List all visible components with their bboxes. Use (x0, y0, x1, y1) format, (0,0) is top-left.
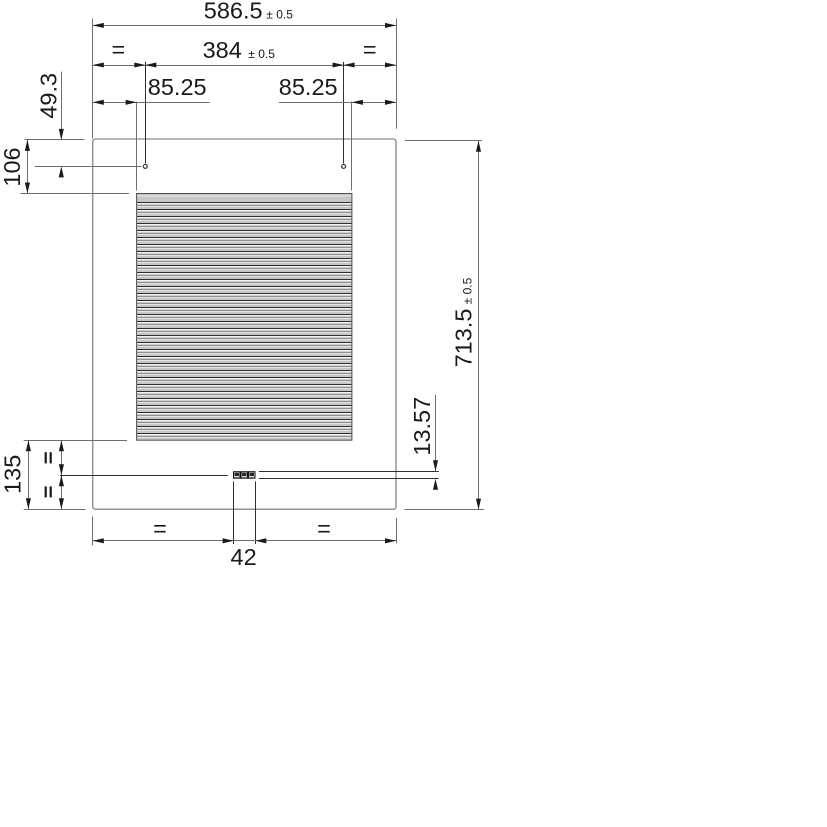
svg-text:586.5: 586.5 (204, 0, 263, 24)
svg-text:13.57: 13.57 (409, 397, 435, 456)
svg-text:± 0.5: ± 0.5 (266, 8, 293, 22)
svg-text:135: 135 (0, 455, 25, 494)
svg-text:85.25: 85.25 (279, 74, 338, 100)
svg-text:384: 384 (203, 37, 242, 63)
svg-text:49.3: 49.3 (35, 73, 61, 119)
svg-text:=: = (317, 516, 331, 542)
svg-text:106: 106 (0, 147, 25, 186)
svg-text:=: = (153, 516, 167, 542)
svg-text:85.25: 85.25 (148, 74, 207, 100)
svg-text:± 0.5: ± 0.5 (460, 277, 474, 304)
svg-text:=: = (112, 36, 126, 62)
svg-text:± 0.5: ± 0.5 (248, 47, 275, 61)
svg-text:713.5: 713.5 (450, 309, 476, 368)
svg-text:42: 42 (231, 544, 257, 570)
svg-text:=: = (363, 36, 377, 62)
